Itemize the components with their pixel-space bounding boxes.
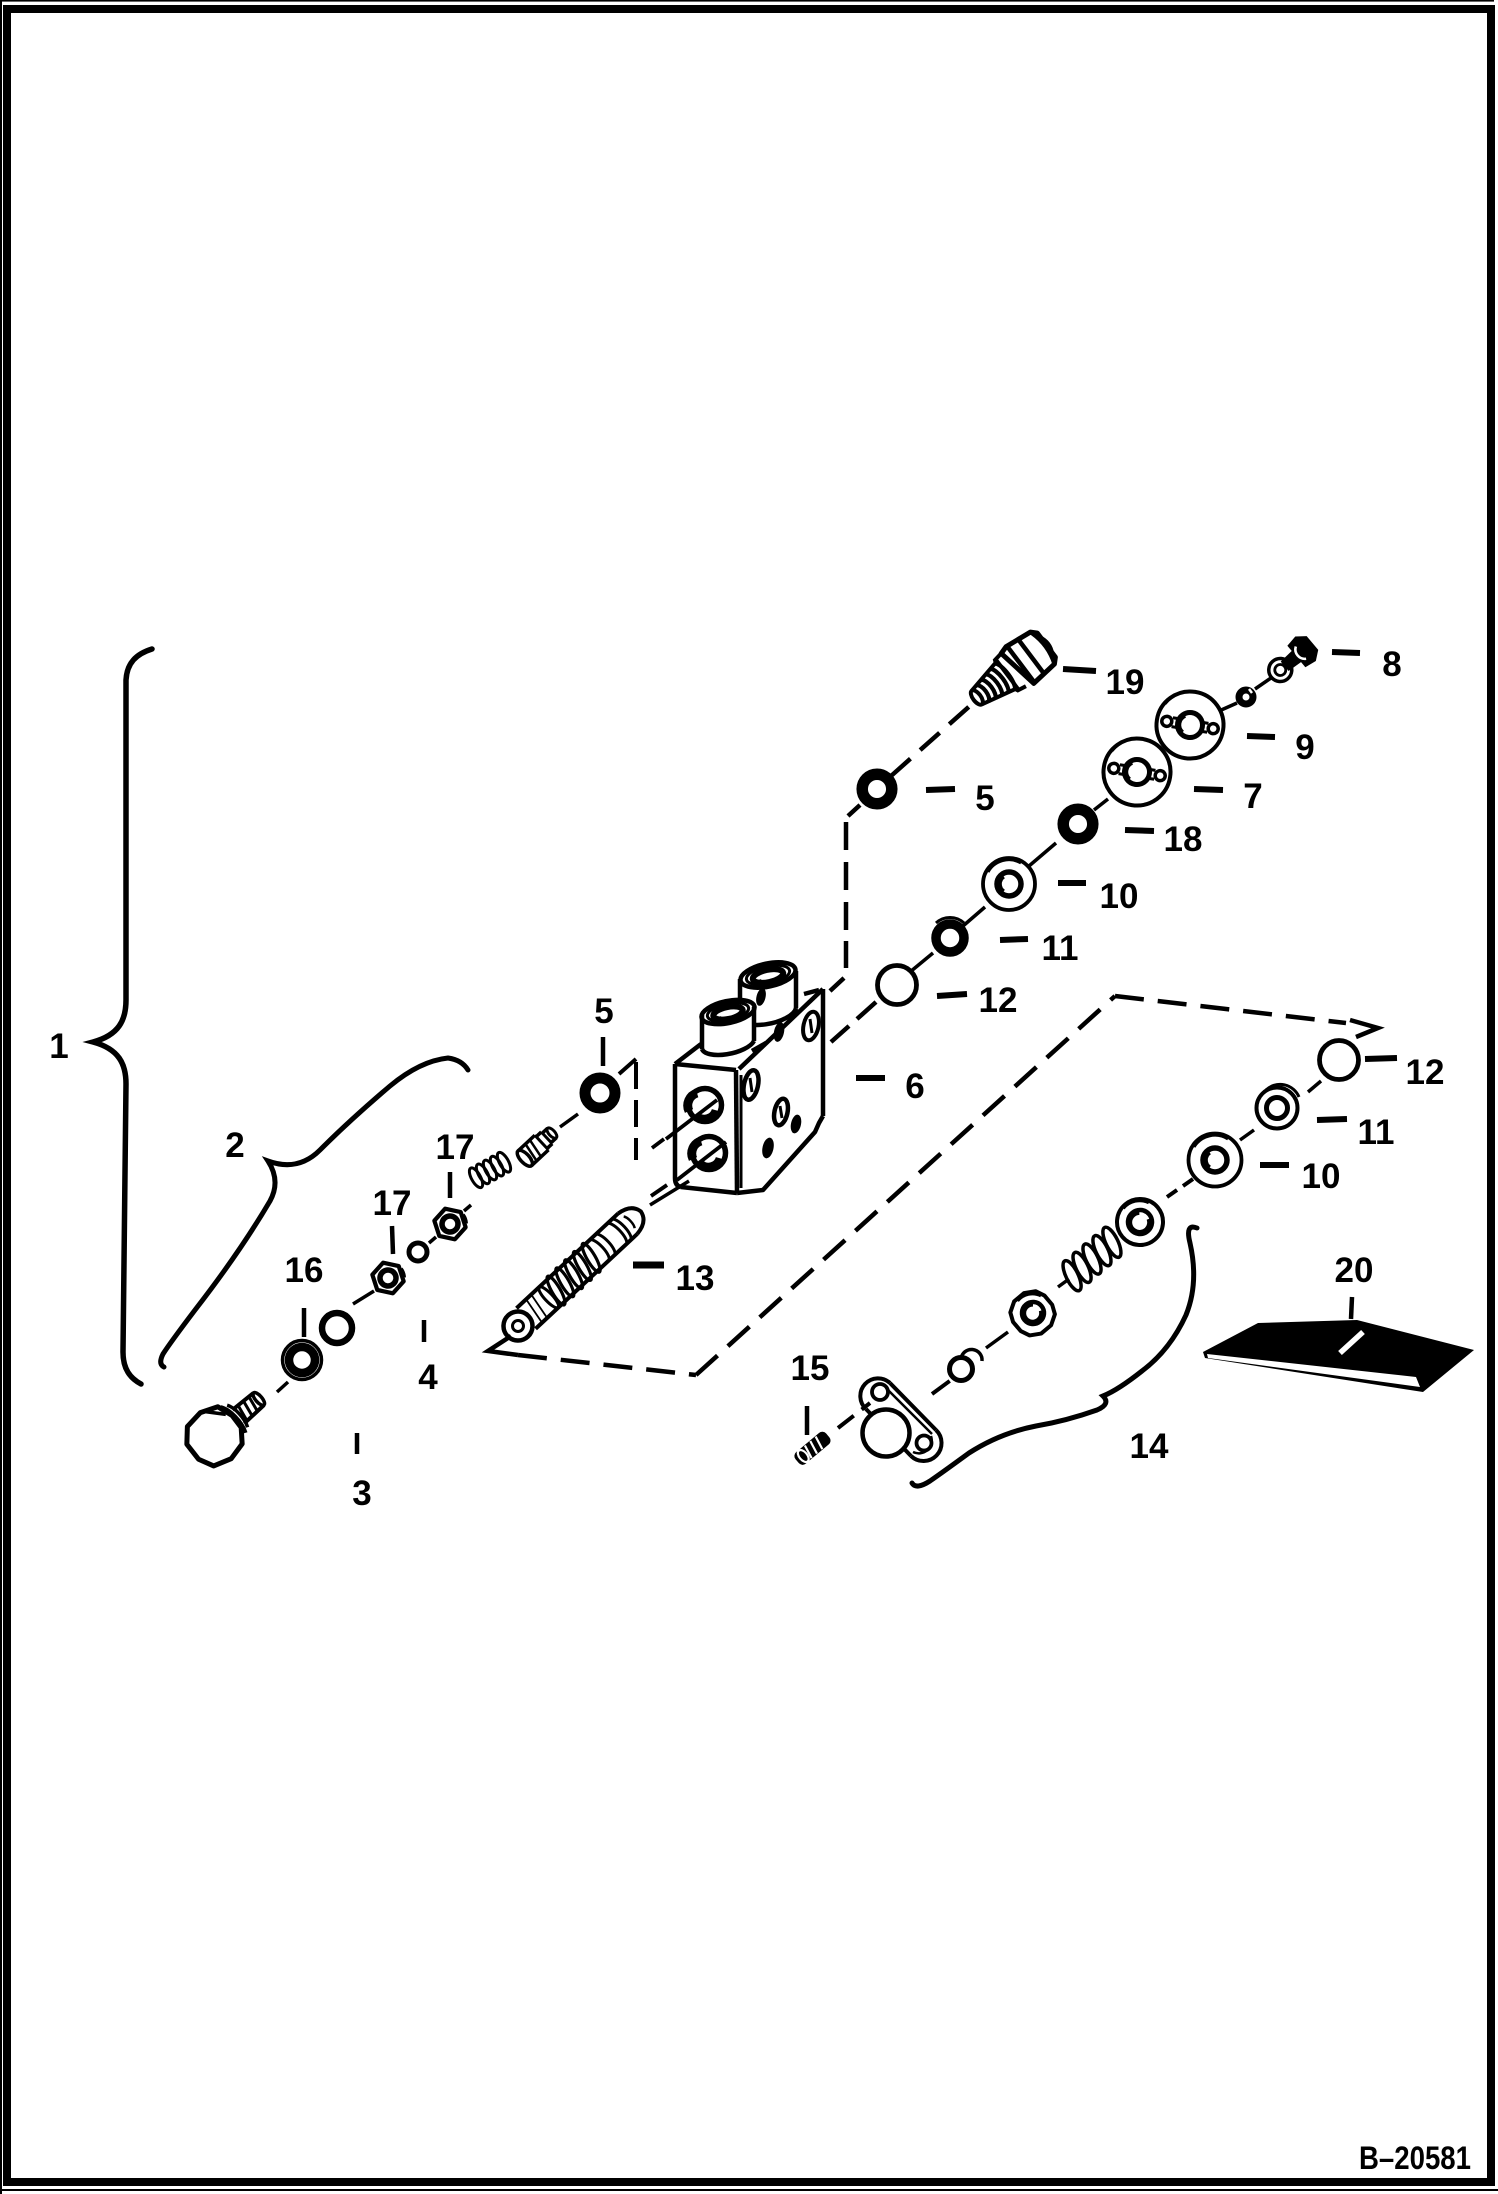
svg-text:17: 17 [436, 1128, 475, 1167]
svg-text:B–20581: B–20581 [1359, 2140, 1471, 2176]
svg-text:11: 11 [1358, 1113, 1395, 1152]
svg-text:19: 19 [1106, 663, 1145, 702]
svg-text:6: 6 [905, 1067, 924, 1106]
svg-text:9: 9 [1295, 728, 1314, 767]
svg-text:2: 2 [225, 1126, 244, 1165]
svg-text:1: 1 [49, 1027, 68, 1066]
svg-text:20: 20 [1335, 1251, 1374, 1290]
svg-text:8: 8 [1382, 645, 1401, 684]
svg-text:14: 14 [1130, 1427, 1169, 1466]
svg-text:10: 10 [1100, 877, 1139, 916]
svg-text:10: 10 [1302, 1157, 1341, 1196]
svg-text:3: 3 [352, 1474, 371, 1513]
svg-text:12: 12 [979, 981, 1018, 1020]
svg-text:13: 13 [676, 1259, 715, 1298]
svg-text:17: 17 [373, 1184, 412, 1223]
svg-text:18: 18 [1164, 820, 1203, 859]
svg-text:11: 11 [1042, 929, 1079, 968]
svg-text:5: 5 [594, 992, 613, 1031]
svg-text:5: 5 [975, 779, 994, 818]
svg-text:15: 15 [791, 1349, 830, 1388]
svg-text:7: 7 [1243, 777, 1262, 816]
svg-text:12: 12 [1406, 1053, 1445, 1092]
svg-text:16: 16 [285, 1251, 324, 1290]
svg-text:4: 4 [418, 1358, 438, 1397]
